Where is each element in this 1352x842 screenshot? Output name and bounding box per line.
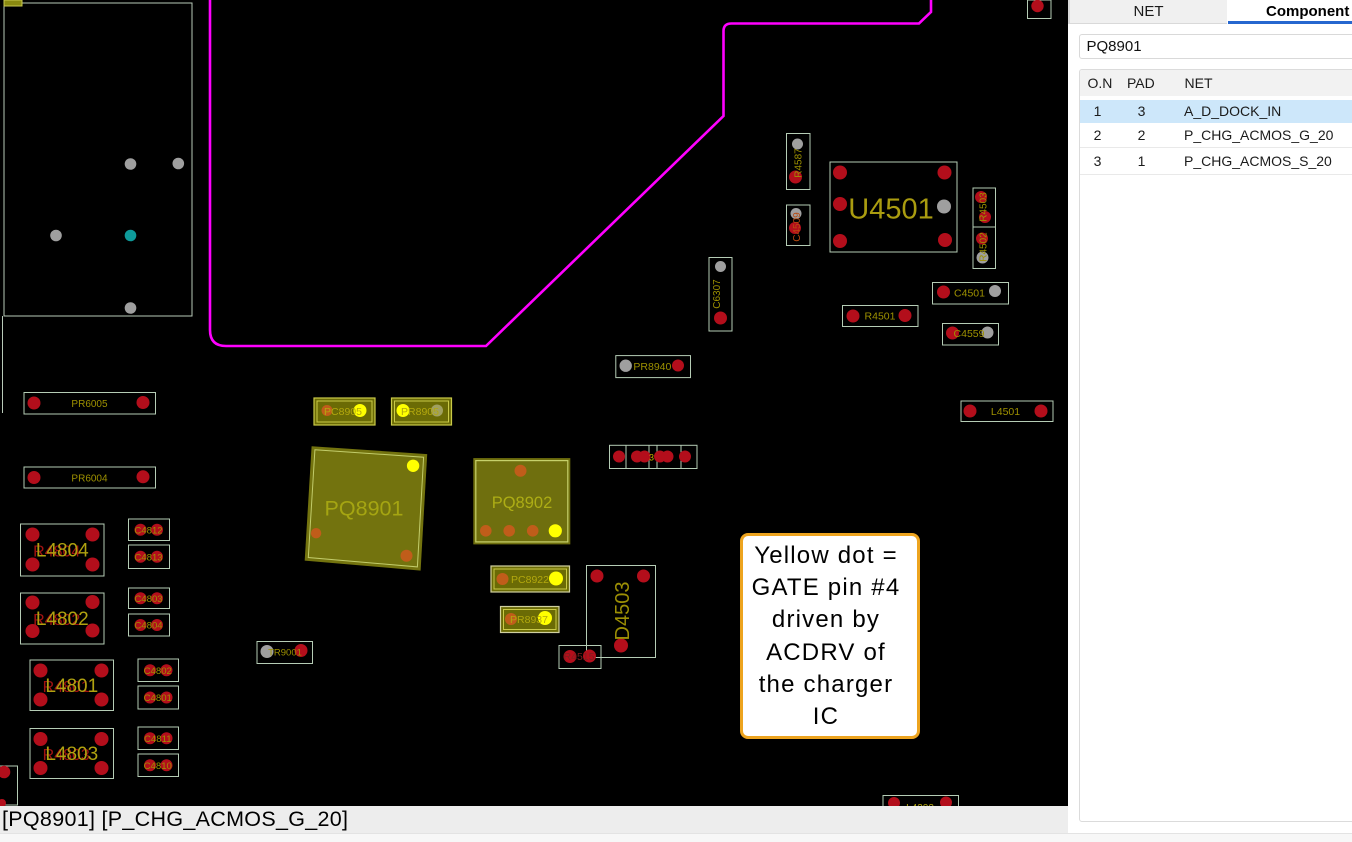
- svg-text:C4801: C4801: [144, 693, 172, 704]
- svg-text:C4813: C4813: [134, 552, 162, 563]
- svg-text:L4801: L4801: [45, 676, 98, 697]
- svg-text:R4515: R4515: [564, 651, 595, 663]
- svg-text:PR8937: PR8937: [510, 614, 548, 626]
- svg-text:R4587: R4587: [794, 148, 805, 178]
- svg-text:L4804: L4804: [36, 541, 89, 562]
- svg-text:PQ8901: PQ8901: [325, 497, 404, 521]
- svg-text:PR6005: PR6005: [71, 399, 108, 410]
- svg-text:C4812: C4812: [134, 525, 162, 536]
- svg-text:PR6004: PR6004: [71, 474, 108, 485]
- svg-text:TR9001: TR9001: [268, 648, 302, 659]
- svg-text:U4501: U4501: [848, 194, 933, 226]
- svg-text:PR8940: PR8940: [633, 361, 671, 373]
- svg-text:PC8922: PC8922: [511, 574, 549, 586]
- svg-text:C4802: C4802: [144, 666, 172, 677]
- svg-text:C4559: C4559: [954, 328, 985, 340]
- svg-text:C4810: C4810: [144, 761, 172, 772]
- svg-text:D4503: D4503: [612, 582, 634, 641]
- svg-text:C4804: C4804: [134, 621, 163, 632]
- svg-text:R4502: R4502: [979, 232, 990, 262]
- svg-text:C6307: C6307: [712, 279, 723, 309]
- svg-text:PR8905: PR8905: [401, 406, 439, 418]
- svg-text:L4501: L4501: [991, 406, 1020, 418]
- svg-text:L4803: L4803: [45, 744, 98, 765]
- svg-text:R4501: R4501: [865, 311, 896, 323]
- svg-text:C4501: C4501: [954, 288, 985, 300]
- svg-text:R4503: R4503: [979, 192, 990, 222]
- svg-text:PQ8902: PQ8902: [492, 494, 553, 512]
- svg-text:C4811: C4811: [144, 734, 172, 745]
- svg-text:C4803: C4803: [134, 594, 162, 605]
- svg-text:PC8905: PC8905: [324, 406, 362, 418]
- svg-text:C4509: C4509: [792, 212, 803, 242]
- svg-text:3: 3: [649, 453, 654, 463]
- svg-text:L4802: L4802: [36, 609, 89, 630]
